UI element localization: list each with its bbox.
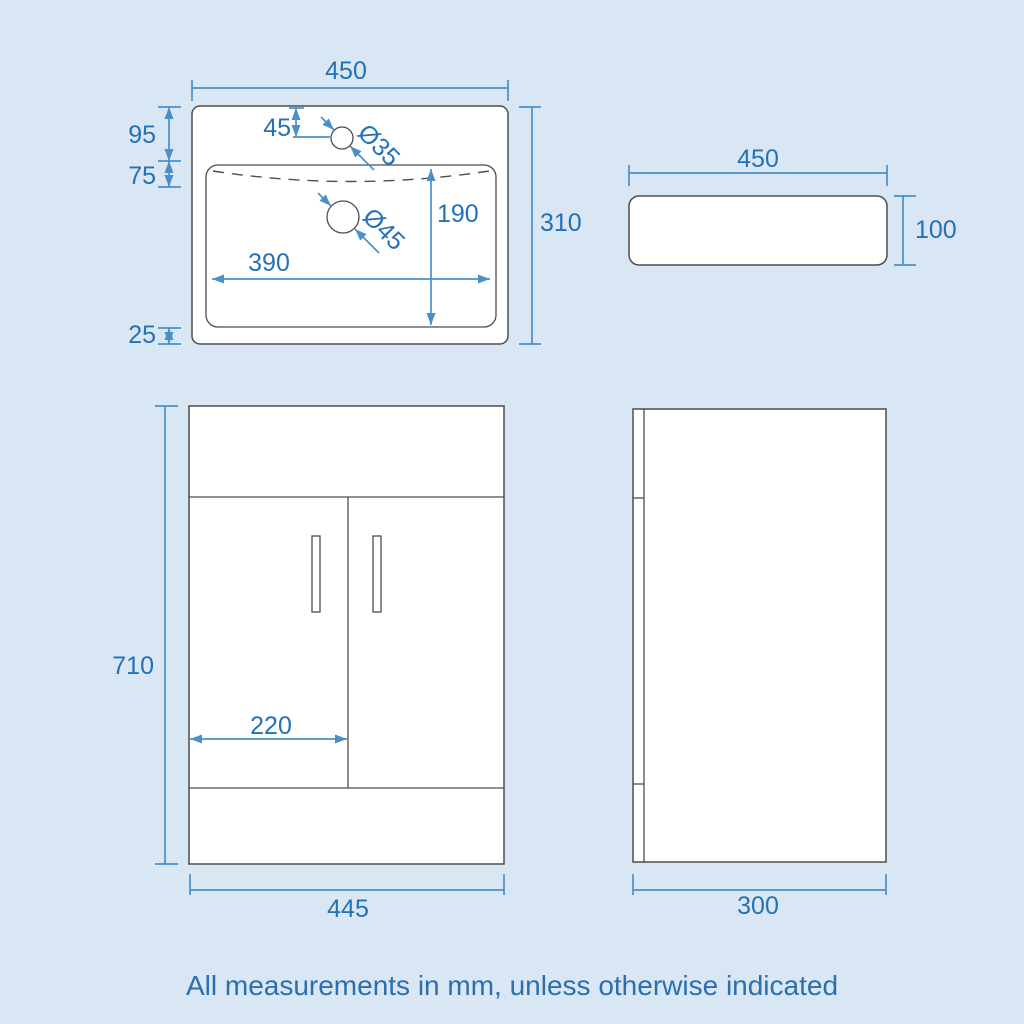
dim-label-bowl-depth: 190 <box>437 200 479 228</box>
dim-label-overall-width: 450 <box>325 57 367 85</box>
dimension-diagram: 450 310 95 75 25 <box>0 0 1024 1024</box>
dim-label-tap-to-bowl: 75 <box>128 162 156 190</box>
dim-label-bowl-to-edge: 25 <box>128 321 156 349</box>
dim-label-edge-to-tap: 95 <box>128 121 156 149</box>
dim-label-tap-offset: 45 <box>263 114 291 142</box>
measurements-caption: All measurements in mm, unless otherwise… <box>186 970 838 1001</box>
dim-label-basin-side-height: 100 <box>915 216 957 244</box>
dim-label-bowl-width: 390 <box>248 249 290 277</box>
dim-label-basin-side-width: 450 <box>737 145 779 173</box>
dim-label-vanity-height: 710 <box>112 652 154 680</box>
dim-label-overall-depth: 310 <box>540 209 582 237</box>
vanity-side-view: 300 <box>633 409 886 920</box>
dim-label-door-width: 220 <box>250 712 292 740</box>
vanity-side-outline <box>633 409 886 862</box>
vanity-front-outline <box>189 406 504 864</box>
basin-side-outline <box>629 196 887 265</box>
dim-label-vanity-depth: 300 <box>737 892 779 920</box>
dim-label-vanity-width: 445 <box>327 895 369 923</box>
